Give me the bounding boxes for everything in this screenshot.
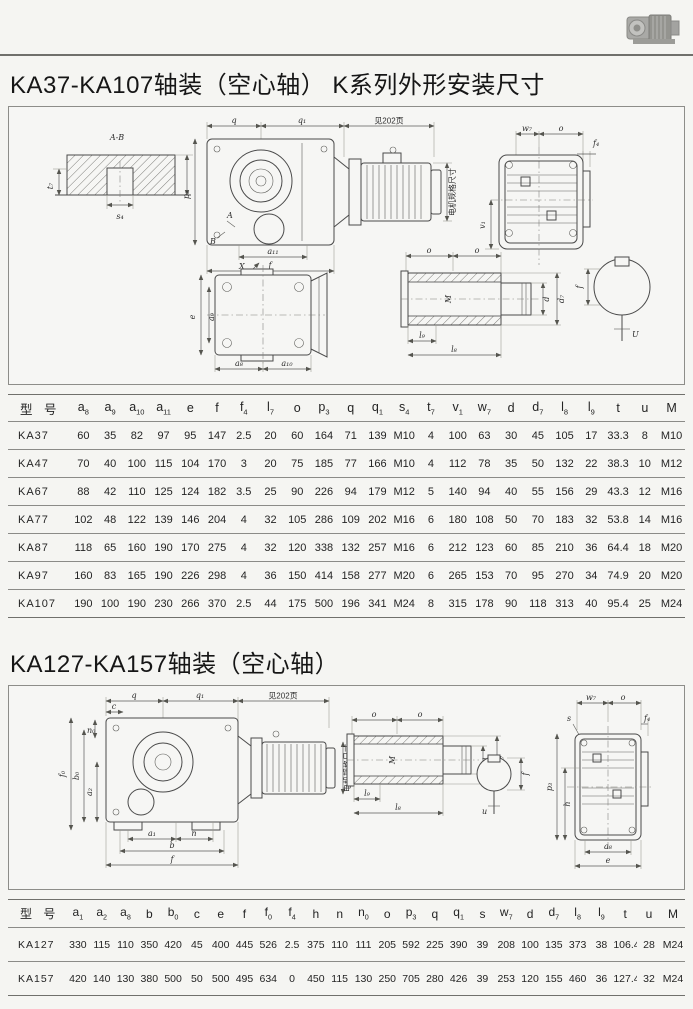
dim-label-b: b — [169, 841, 174, 850]
column-header: f4 — [230, 395, 257, 422]
table-ka127-ka157: 型 号a1a2a8bb0ceff0f4hnn0op3qq1sw7dd7l8l9t… — [8, 899, 685, 996]
model-cell: KA107 — [8, 590, 70, 618]
value-cell: 97 — [150, 422, 177, 450]
dim-label-f4: f₄ — [592, 139, 599, 148]
value-cell: 315 — [444, 590, 471, 618]
value-cell: 130 — [352, 962, 376, 996]
value-cell: 40 — [97, 450, 124, 478]
dim-label-v1: v₁ — [478, 221, 487, 229]
value-cell: 17 — [578, 422, 605, 450]
see-page-202-note: 见202页 — [268, 692, 297, 701]
dim-label-n: n — [191, 829, 196, 838]
value-cell: 460 — [566, 962, 590, 996]
dim-label-o-left: o — [427, 246, 432, 255]
value-cell: 130 — [114, 962, 138, 996]
value-cell: 115 — [328, 962, 352, 996]
value-cell: 205 — [375, 928, 399, 962]
column-header: a8 — [70, 395, 97, 422]
column-header: t — [613, 900, 637, 928]
value-cell: 196 — [337, 590, 364, 618]
value-cell: 29 — [578, 478, 605, 506]
value-cell: 112 — [444, 450, 471, 478]
value-cell: 45 — [524, 422, 551, 450]
column-header: a2 — [90, 900, 114, 928]
value-cell: 164 — [311, 422, 338, 450]
dim-label-q1: q₁ — [298, 116, 306, 125]
dim-label-o-left: o — [372, 710, 377, 719]
column-header: a1 — [66, 900, 90, 928]
mark-label-b: B — [209, 237, 216, 246]
gearmotor-photo-icon — [625, 5, 683, 51]
dim-label-f0: f₀ — [58, 770, 67, 778]
value-cell: 106.4 — [613, 928, 637, 962]
dim-label-p3: p₃ — [545, 783, 554, 791]
value-cell: 36 — [257, 562, 284, 590]
value-cell: 426 — [447, 962, 471, 996]
dim-label-m: M — [444, 294, 453, 304]
value-cell: 280 — [423, 962, 447, 996]
value-cell: 179 — [364, 478, 391, 506]
value-cell: 178 — [471, 590, 498, 618]
column-header: a10 — [123, 395, 150, 422]
table-row: KA1071901001902302663702.544175500196341… — [8, 590, 685, 618]
value-cell: 445 — [233, 928, 257, 962]
value-cell: 25 — [631, 590, 658, 618]
value-cell: 420 — [161, 928, 185, 962]
column-header: o — [375, 900, 399, 928]
column-header: l9 — [590, 900, 614, 928]
value-cell: 70 — [70, 450, 97, 478]
column-header: t7 — [418, 395, 445, 422]
installation-diagram-2: q q₁ 见202页 c n₀ 电机规格尺寸 f₀ b₀ a₂ a₁ n — [8, 685, 685, 890]
value-cell: 3 — [230, 450, 257, 478]
table-row: KA6788421101251241823.5259022694179M1251… — [8, 478, 685, 506]
table-row: KA7710248122139146204432105286109202M166… — [8, 506, 685, 534]
value-cell: 225 — [423, 928, 447, 962]
value-cell: 125 — [150, 478, 177, 506]
dim-label-q: q — [131, 691, 136, 700]
model-cell: KA87 — [8, 534, 70, 562]
dim-label-f-circle: f — [575, 283, 584, 289]
value-cell: 373 — [566, 928, 590, 962]
value-cell: 330 — [66, 928, 90, 962]
value-cell: 4 — [418, 450, 445, 478]
column-header: s4 — [391, 395, 418, 422]
value-cell: 450 — [304, 962, 328, 996]
column-header: u — [637, 900, 661, 928]
column-header: d7 — [524, 395, 551, 422]
value-cell: 380 — [137, 962, 161, 996]
column-header: M — [658, 395, 685, 422]
model-cell: KA77 — [8, 506, 70, 534]
value-cell: 592 — [399, 928, 423, 962]
value-cell: 70 — [524, 506, 551, 534]
value-cell: 375 — [304, 928, 328, 962]
value-cell: 32 — [637, 962, 661, 996]
table-row: KA3760358297951472.5206016471139M1041006… — [8, 422, 685, 450]
value-cell: 190 — [70, 590, 97, 618]
dim-label-p3: p₃ — [182, 191, 191, 199]
value-cell: 414 — [311, 562, 338, 590]
view-label-ab: A-B — [109, 133, 124, 142]
dim-label-a11: a₁₁ — [267, 247, 278, 256]
table-row: KA8711865160190170275432120338132257M166… — [8, 534, 685, 562]
column-header: l9 — [578, 395, 605, 422]
value-cell: 180 — [444, 506, 471, 534]
value-cell: 63 — [471, 422, 498, 450]
model-column-header: 型 号 — [8, 900, 66, 928]
column-header: s — [471, 900, 495, 928]
value-cell: 14 — [631, 506, 658, 534]
value-cell: 64.4 — [605, 534, 632, 562]
column-header: v1 — [444, 395, 471, 422]
dim-label-f4: f₄ — [643, 714, 650, 723]
dim-label-u-circle: U — [632, 330, 639, 339]
value-cell: 132 — [337, 534, 364, 562]
dim-label-b0: b₀ — [72, 771, 81, 780]
value-cell: 634 — [256, 962, 280, 996]
value-cell: 10 — [631, 450, 658, 478]
value-cell: 109 — [337, 506, 364, 534]
value-cell: 150 — [284, 562, 311, 590]
see-page-202-note: 见202页 — [374, 117, 403, 126]
column-header: h — [304, 900, 328, 928]
value-cell: 122 — [123, 506, 150, 534]
value-cell: 105 — [284, 506, 311, 534]
value-cell: 30 — [498, 422, 525, 450]
value-cell: 140 — [444, 478, 471, 506]
value-cell: 18 — [631, 534, 658, 562]
section1-title: KA37-KA107轴装（空心轴） K系列外形安装尺寸 — [10, 65, 683, 100]
side-view-gearmotor: q q₁ 见202页 电机规格尺寸 p₃ A B a₁₁ f X — [182, 116, 457, 296]
value-cell: 40 — [498, 478, 525, 506]
value-cell: 127.4 — [613, 962, 637, 996]
value-cell: 390 — [447, 928, 471, 962]
value-cell: 123 — [471, 534, 498, 562]
dim-label-a10: a₁₀ — [281, 359, 293, 368]
diagram-ka127-ka157-svg: q q₁ 见202页 c n₀ 电机规格尺寸 f₀ b₀ a₂ a₁ n — [9, 686, 686, 884]
value-cell: 270 — [551, 562, 578, 590]
dim-label-f-circle: f — [521, 770, 530, 776]
value-cell: 43.3 — [605, 478, 632, 506]
value-cell: 78 — [471, 450, 498, 478]
value-cell: 4 — [230, 562, 257, 590]
column-header: t — [605, 395, 632, 422]
column-header: q1 — [447, 900, 471, 928]
value-cell: 108 — [471, 506, 498, 534]
dim-label-d7: d₇ — [557, 294, 566, 303]
value-cell: 266 — [177, 590, 204, 618]
value-cell: 60 — [498, 534, 525, 562]
value-cell: 25 — [257, 478, 284, 506]
header-row: 型 号a8a9a10a11eff4l7op3qq1s4t7v1w7dd7l8l9… — [8, 395, 685, 422]
value-cell: 250 — [375, 962, 399, 996]
value-cell: 226 — [177, 562, 204, 590]
model-cell: KA157 — [8, 962, 66, 996]
motor-spec-note: 电机规格尺寸 — [447, 168, 457, 216]
dim-label-a8: a₈ — [604, 842, 613, 851]
value-cell: 90 — [498, 590, 525, 618]
value-cell: 182 — [204, 478, 231, 506]
dim-label-o: o — [559, 124, 564, 133]
value-cell: M10 — [658, 422, 685, 450]
value-cell: M16 — [391, 534, 418, 562]
value-cell: 705 — [399, 962, 423, 996]
column-header: b0 — [161, 900, 185, 928]
dim-label-q: q — [231, 116, 236, 125]
value-cell: 50 — [524, 450, 551, 478]
column-header: f — [204, 395, 231, 422]
value-cell: 495 — [233, 962, 257, 996]
value-cell: 153 — [471, 562, 498, 590]
column-header: p3 — [311, 395, 338, 422]
value-cell: 12 — [631, 478, 658, 506]
model-cell: KA37 — [8, 422, 70, 450]
value-cell: 135 — [542, 928, 566, 962]
table-row: KA15742014013038050050500495634045011513… — [8, 962, 685, 996]
value-cell: 100 — [123, 450, 150, 478]
value-cell: M12 — [658, 450, 685, 478]
dim-label-f: f — [170, 855, 176, 864]
value-cell: 28 — [637, 928, 661, 962]
dim-label-l9: l₉ — [364, 789, 371, 798]
column-header: n0 — [352, 900, 376, 928]
value-cell: 4 — [418, 422, 445, 450]
value-cell: 8 — [418, 590, 445, 618]
dim-label-o-right: o — [475, 246, 480, 255]
column-header: b — [137, 900, 161, 928]
value-cell: 95 — [177, 422, 204, 450]
dim-label-o: o — [621, 693, 626, 702]
value-cell: 500 — [311, 590, 338, 618]
rear-view: w₇ o f₄ v₁ — [478, 124, 599, 265]
value-cell: 230 — [150, 590, 177, 618]
value-cell: M20 — [658, 534, 685, 562]
dim-label-s: s — [567, 714, 571, 723]
column-header: a9 — [97, 395, 124, 422]
value-cell: 39 — [471, 928, 495, 962]
value-cell: 110 — [328, 928, 352, 962]
value-cell: 88 — [70, 478, 97, 506]
value-cell: 400 — [209, 928, 233, 962]
value-cell: 35 — [97, 422, 124, 450]
value-cell: 70 — [498, 562, 525, 590]
value-cell: M20 — [391, 562, 418, 590]
value-cell: 226 — [311, 478, 338, 506]
value-cell: 105 — [551, 422, 578, 450]
value-cell: 146 — [177, 506, 204, 534]
value-cell: 183 — [551, 506, 578, 534]
value-cell: M24 — [391, 590, 418, 618]
value-cell: 147 — [204, 422, 231, 450]
value-cell: 115 — [150, 450, 177, 478]
value-cell: 500 — [209, 962, 233, 996]
column-header: u — [631, 395, 658, 422]
top-divider-bar — [0, 0, 693, 56]
value-cell: 53.8 — [605, 506, 632, 534]
column-header: d — [518, 900, 542, 928]
value-cell: M24 — [661, 962, 685, 996]
value-cell: 202 — [364, 506, 391, 534]
column-header: d — [498, 395, 525, 422]
value-cell: 8 — [631, 422, 658, 450]
dim-label-d: d — [542, 296, 551, 301]
value-cell: 77 — [337, 450, 364, 478]
value-cell: M12 — [391, 478, 418, 506]
value-cell: 4 — [230, 506, 257, 534]
column-header: l8 — [551, 395, 578, 422]
value-cell: 350 — [137, 928, 161, 962]
value-cell: 175 — [284, 590, 311, 618]
dim-label-l8: l₈ — [395, 803, 402, 812]
value-cell: 253 — [494, 962, 518, 996]
column-header: p3 — [399, 900, 423, 928]
dim-label-s4: s₄ — [116, 212, 123, 221]
dim-label-t7: t₇ — [46, 182, 55, 189]
diagram-ka37-ka107-svg: A-B t₇ s₄ q q₁ 见202页 — [9, 107, 686, 379]
value-cell: 100 — [444, 422, 471, 450]
bore-circle-view-2: u f — [477, 755, 530, 816]
header-row: 型 号a1a2a8bb0ceff0f4hnn0op3qq1sw7dd7l8l9t… — [8, 900, 685, 928]
value-cell: 55 — [524, 478, 551, 506]
dim-label-c: c — [112, 702, 117, 711]
value-cell: 5 — [418, 478, 445, 506]
value-cell: 170 — [204, 450, 231, 478]
value-cell: 338 — [311, 534, 338, 562]
value-cell: 95 — [524, 562, 551, 590]
column-header: e — [177, 395, 204, 422]
dim-label-a2: a₂ — [85, 788, 94, 796]
dim-label-m: M — [388, 755, 397, 765]
column-header: a8 — [114, 900, 138, 928]
value-cell: 33.3 — [605, 422, 632, 450]
value-cell: 118 — [524, 590, 551, 618]
value-cell: 95.4 — [605, 590, 632, 618]
value-cell: 74.9 — [605, 562, 632, 590]
value-cell: 257 — [364, 534, 391, 562]
value-cell: 190 — [123, 590, 150, 618]
model-cell: KA67 — [8, 478, 70, 506]
value-cell: 38 — [590, 928, 614, 962]
value-cell: 6 — [418, 506, 445, 534]
value-cell: 286 — [311, 506, 338, 534]
value-cell: 156 — [551, 478, 578, 506]
value-cell: 2.5 — [280, 928, 304, 962]
column-header: d7 — [542, 900, 566, 928]
value-cell: M20 — [658, 562, 685, 590]
column-header: w7 — [494, 900, 518, 928]
catalog-page: { "titles": { "section1": "KA37-KA107轴装（… — [0, 0, 693, 1009]
value-cell: 190 — [150, 562, 177, 590]
value-cell: 210 — [551, 534, 578, 562]
value-cell: 104 — [177, 450, 204, 478]
dim-label-q1: q₁ — [196, 691, 204, 700]
value-cell: 82 — [123, 422, 150, 450]
model-cell: KA127 — [8, 928, 66, 962]
value-cell: 94 — [471, 478, 498, 506]
value-cell: 110 — [123, 478, 150, 506]
dim-label-l8: l₈ — [451, 345, 458, 354]
dim-label-w7: w₇ — [522, 124, 533, 133]
value-cell: 4 — [230, 534, 257, 562]
value-cell: 50 — [185, 962, 209, 996]
value-cell: 124 — [177, 478, 204, 506]
table-row: KA9716083165190226298436150414158277M206… — [8, 562, 685, 590]
value-cell: M10 — [391, 422, 418, 450]
value-cell: 36 — [578, 534, 605, 562]
column-header: f0 — [256, 900, 280, 928]
value-cell: 45 — [185, 928, 209, 962]
value-cell: 34 — [578, 562, 605, 590]
column-header: f — [233, 900, 257, 928]
column-header: q — [337, 395, 364, 422]
value-cell: 132 — [551, 450, 578, 478]
column-header: e — [209, 900, 233, 928]
value-cell: 170 — [177, 534, 204, 562]
value-cell: 110 — [114, 928, 138, 962]
column-header: l7 — [257, 395, 284, 422]
column-header: l8 — [566, 900, 590, 928]
value-cell: 120 — [284, 534, 311, 562]
value-cell: 50 — [498, 506, 525, 534]
column-header: q1 — [364, 395, 391, 422]
dim-label-u: u — [482, 807, 487, 816]
column-header: w7 — [471, 395, 498, 422]
value-cell: 20 — [631, 562, 658, 590]
value-cell: 35 — [498, 450, 525, 478]
value-cell: 32 — [257, 506, 284, 534]
value-cell: 500 — [161, 962, 185, 996]
column-header: a11 — [150, 395, 177, 422]
dim-label-e: e — [606, 856, 611, 865]
value-cell: 6 — [418, 562, 445, 590]
value-cell: 75 — [284, 450, 311, 478]
dim-label-o-right: o — [418, 710, 423, 719]
value-cell: 120 — [518, 962, 542, 996]
value-cell: 20 — [257, 450, 284, 478]
value-cell: 3.5 — [230, 478, 257, 506]
value-cell: 102 — [70, 506, 97, 534]
value-cell: 204 — [204, 506, 231, 534]
value-cell: 39 — [471, 962, 495, 996]
value-cell: 118 — [70, 534, 97, 562]
dim-label-h: h — [563, 801, 572, 806]
value-cell: 341 — [364, 590, 391, 618]
x-direction-view: X e a₉ a₈ a₁₀ — [188, 262, 327, 372]
value-cell: 265 — [444, 562, 471, 590]
dim-label-e: e — [188, 314, 197, 319]
value-cell: 139 — [150, 506, 177, 534]
value-cell: 158 — [337, 562, 364, 590]
model-cell: KA97 — [8, 562, 70, 590]
dim-label-l9: l₉ — [419, 331, 426, 340]
value-cell: 38.3 — [605, 450, 632, 478]
value-cell: 48 — [97, 506, 124, 534]
value-cell: M24 — [661, 928, 685, 962]
installation-diagram-1: A-B t₇ s₄ q q₁ 见202页 — [8, 106, 685, 385]
section-view-ab: A-B t₇ s₄ — [46, 133, 193, 221]
value-cell: 155 — [542, 962, 566, 996]
value-cell: 166 — [364, 450, 391, 478]
value-cell: 420 — [66, 962, 90, 996]
value-cell: 100 — [518, 928, 542, 962]
value-cell: M16 — [658, 506, 685, 534]
value-cell: 20 — [257, 422, 284, 450]
value-cell: 42 — [97, 478, 124, 506]
value-cell: 40 — [578, 590, 605, 618]
value-cell: 212 — [444, 534, 471, 562]
table-row: KA127330115110350420454004455262.5375110… — [8, 928, 685, 962]
